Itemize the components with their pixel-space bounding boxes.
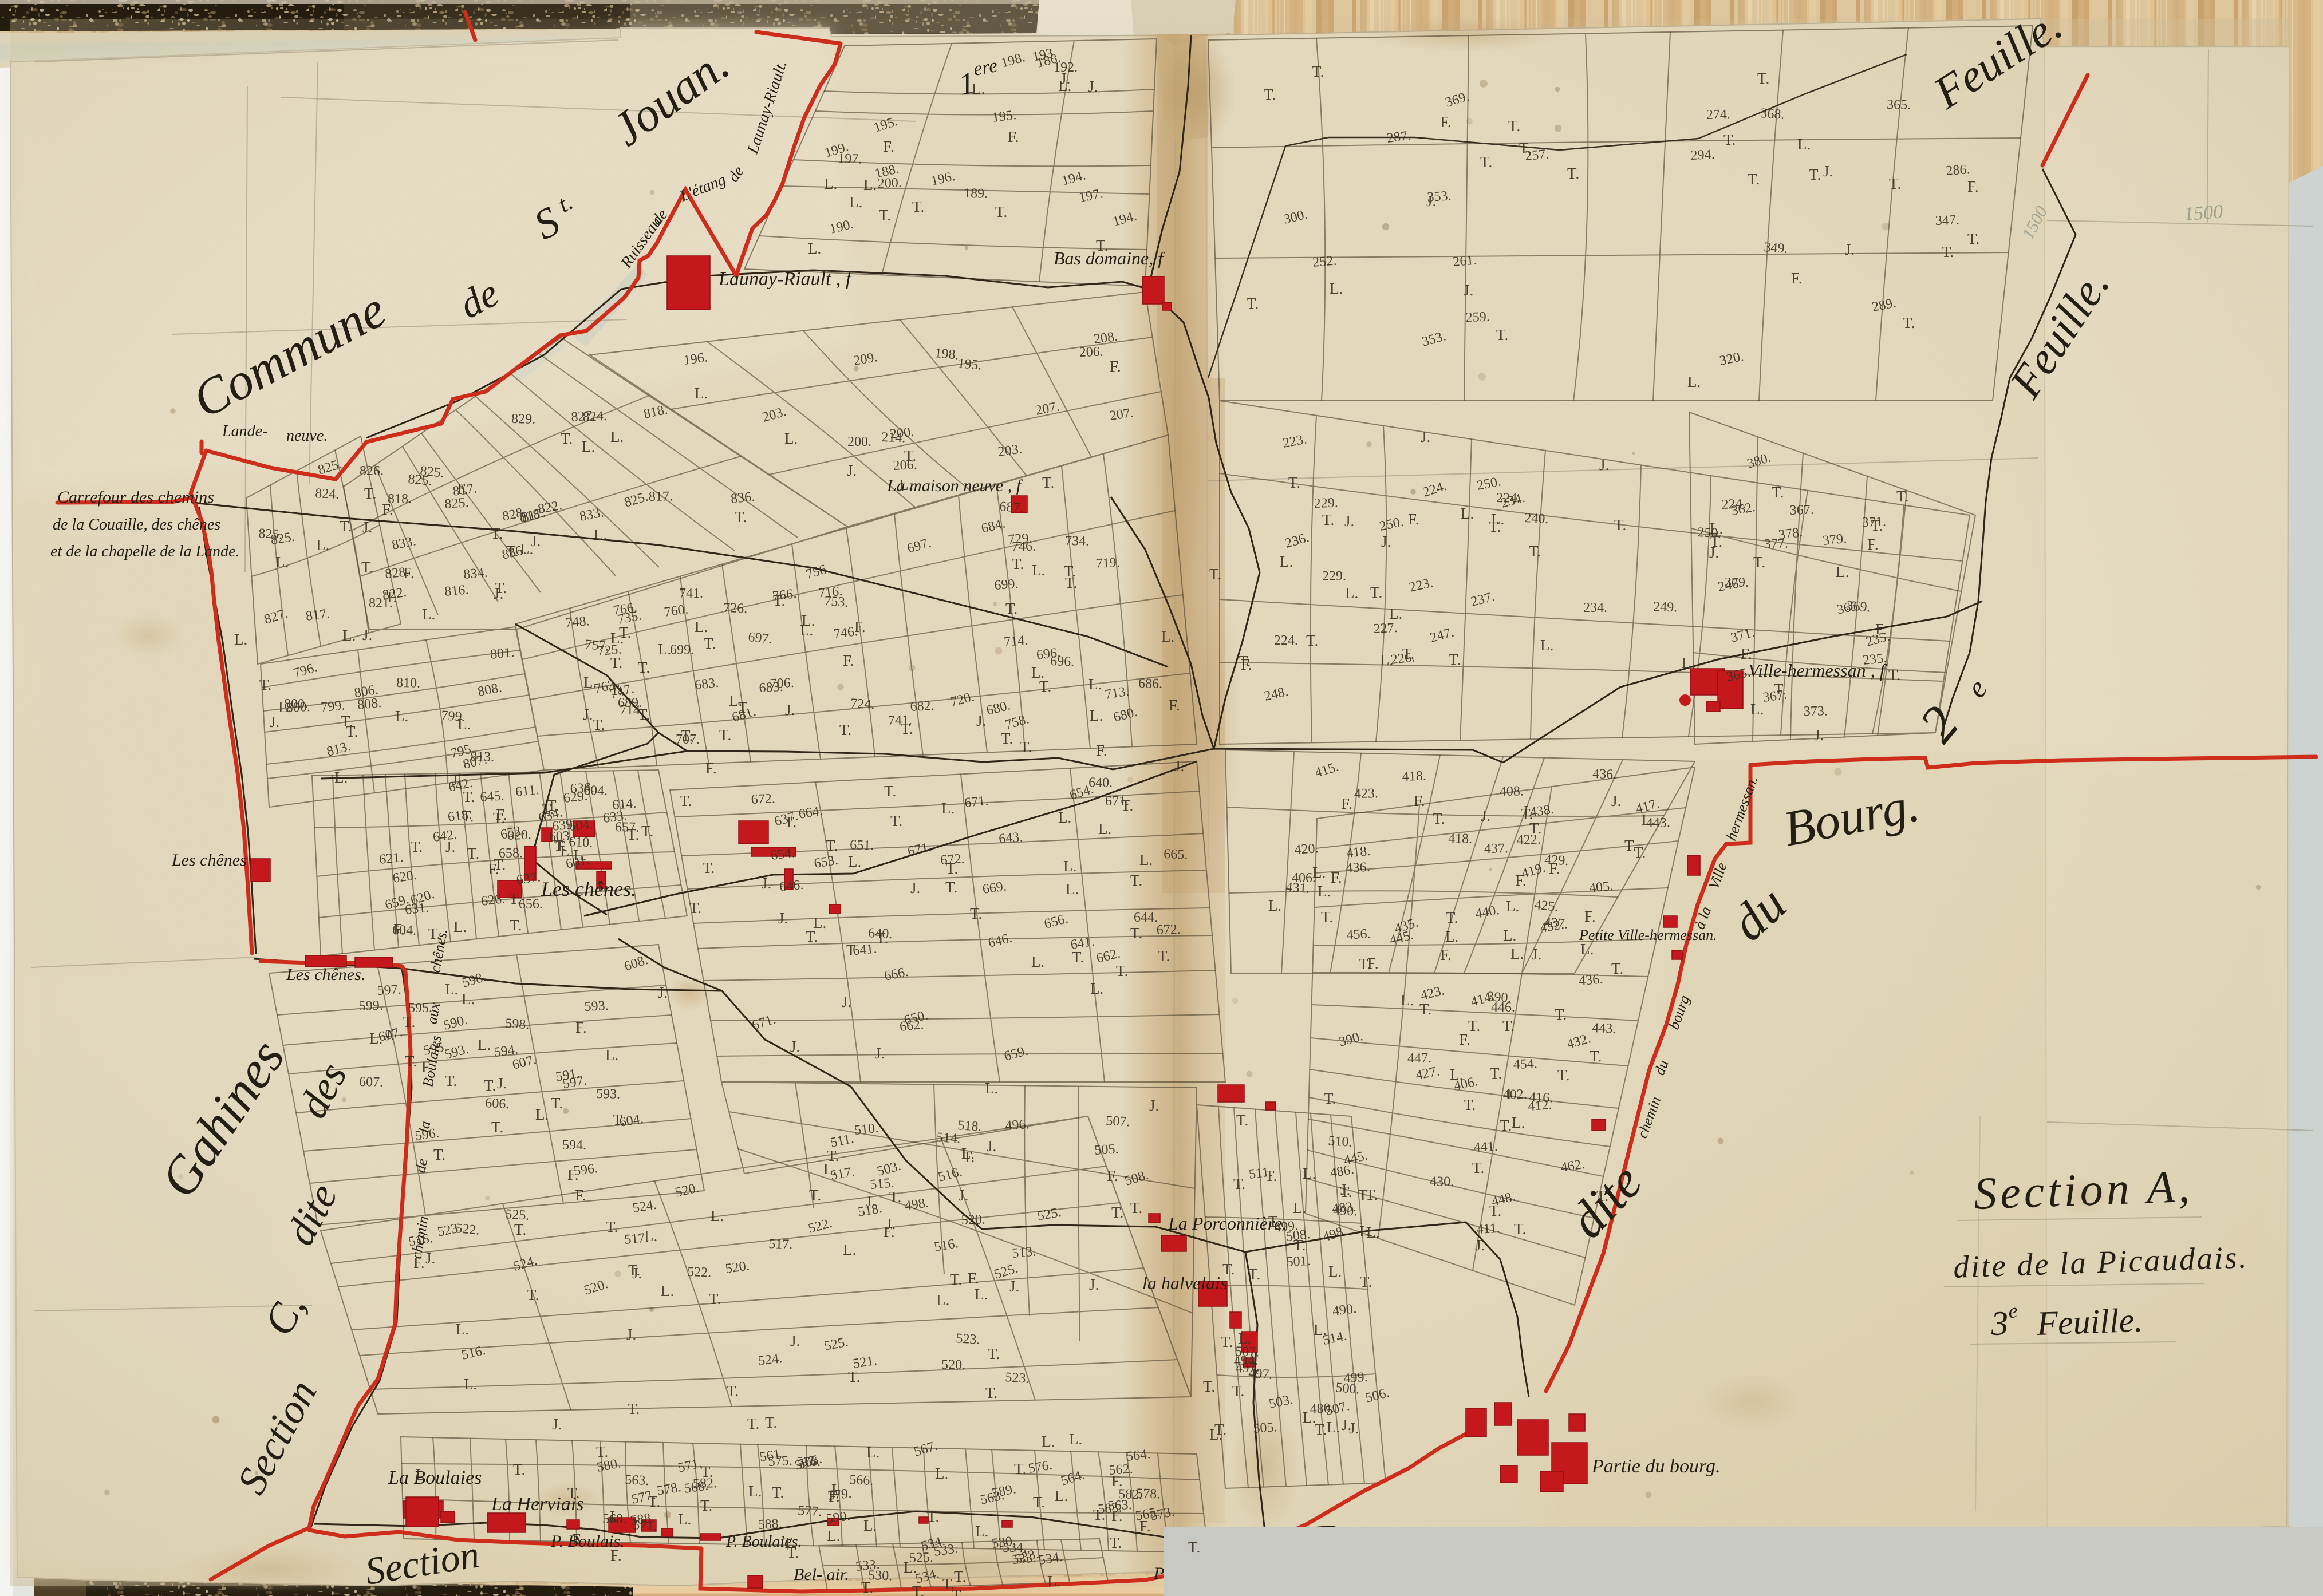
svg-text:L.: L.	[936, 1291, 949, 1309]
svg-text:T.: T.	[1555, 1006, 1567, 1023]
svg-text:T.: T.	[1567, 165, 1579, 182]
svg-text:349.: 349.	[1764, 240, 1789, 256]
svg-text:L.: L.	[1058, 809, 1071, 826]
svg-text:515.: 515.	[869, 1175, 894, 1192]
svg-text:T.: T.	[1110, 1534, 1122, 1551]
svg-text:L.: L.	[1506, 898, 1519, 915]
svg-text:T.: T.	[411, 838, 423, 855]
svg-text:594.: 594.	[562, 1138, 586, 1153]
svg-text:T.: T.	[1033, 1494, 1045, 1511]
svg-text:L.: L.	[711, 1207, 724, 1224]
svg-text:J.: J.	[785, 701, 795, 718]
svg-text:T.: T.	[952, 1586, 964, 1596]
svg-text:T.: T.	[884, 783, 896, 800]
svg-text:F.: F.	[1867, 536, 1879, 553]
svg-text:T.: T.	[912, 198, 924, 215]
svg-text:L.: L.	[1330, 280, 1343, 297]
svg-text:T.: T.	[1209, 566, 1221, 583]
svg-text:T.: T.	[1419, 1001, 1431, 1018]
svg-text:T.: T.	[1321, 908, 1333, 926]
svg-text:645.: 645.	[480, 788, 505, 805]
svg-text:672.: 672.	[1156, 922, 1181, 938]
svg-text:T.: T.	[1508, 117, 1520, 135]
svg-text:234.: 234.	[1583, 601, 1607, 615]
svg-text:F.: F.	[572, 1531, 583, 1548]
svg-text:L.: L.	[1445, 928, 1458, 945]
svg-text:J.: J.	[1381, 533, 1391, 550]
svg-text:836.: 836.	[730, 489, 755, 507]
svg-text:436.: 436.	[1578, 971, 1603, 989]
svg-text:T.: T.	[1236, 1112, 1248, 1129]
svg-text:T.: T.	[445, 1072, 457, 1089]
svg-text:418.: 418.	[1346, 844, 1371, 861]
svg-text:ere: ere	[972, 55, 999, 80]
svg-text:611.: 611.	[515, 783, 540, 800]
svg-text:F.: F.	[1169, 697, 1180, 714]
svg-text:Section A,: Section A,	[1973, 1162, 2194, 1219]
svg-text:J.: J.	[778, 910, 788, 927]
svg-text:T.: T.	[1472, 1159, 1484, 1176]
svg-text:L.: L.	[1836, 563, 1849, 580]
svg-text:F.: F.	[1414, 792, 1425, 809]
svg-text:T.: T.	[1489, 1202, 1501, 1219]
svg-text:T.: T.	[1634, 844, 1646, 861]
svg-text:454.: 454.	[1513, 1057, 1537, 1072]
svg-text:T.: T.	[1293, 1236, 1306, 1254]
svg-text:T.: T.	[641, 823, 653, 840]
svg-text:T.: T.	[1264, 86, 1276, 103]
svg-text:513.: 513.	[1011, 1244, 1036, 1261]
svg-text:224.: 224.	[1274, 633, 1298, 648]
svg-text:L.: L.	[661, 1282, 674, 1299]
svg-text:F.: F.	[1096, 742, 1107, 759]
svg-text:L.: L.	[1359, 1223, 1372, 1240]
svg-text:T.: T.	[1130, 1199, 1142, 1216]
svg-text:T.: T.	[554, 837, 566, 854]
svg-text:644.: 644.	[1134, 910, 1158, 925]
svg-text:593.: 593.	[584, 998, 609, 1014]
svg-text:T.: T.	[340, 517, 352, 535]
svg-text:J.: J.	[362, 626, 372, 643]
svg-text:L.: L.	[1303, 1165, 1316, 1182]
svg-text:T.: T.	[681, 727, 693, 744]
svg-text:818.: 818.	[388, 492, 412, 507]
svg-text:L.: L.	[1345, 584, 1358, 602]
svg-text:Les chênes.: Les chênes.	[541, 878, 636, 900]
svg-text:L.: L.	[1280, 553, 1293, 570]
svg-text:L.: L.	[1327, 1419, 1340, 1436]
svg-text:J.: J.	[762, 875, 771, 892]
svg-text:J.: J.	[1481, 807, 1490, 824]
svg-text:741.: 741.	[888, 713, 912, 728]
svg-text:T.: T.	[1723, 131, 1736, 148]
svg-text:F.: F.	[968, 1270, 979, 1287]
svg-text:501.: 501.	[1286, 1254, 1311, 1270]
svg-text:T.: T.	[1590, 1048, 1602, 1065]
svg-text:T.: T.	[613, 1111, 625, 1128]
svg-text:T.: T.	[1322, 511, 1334, 528]
svg-text:T.: T.	[527, 1286, 539, 1303]
svg-text:L.: L.	[1088, 675, 1102, 693]
svg-text:T.: T.	[1514, 1220, 1526, 1238]
svg-text:L.: L.	[1510, 945, 1524, 962]
svg-text:L.: L.	[748, 1483, 762, 1500]
svg-text:808.: 808.	[357, 696, 382, 713]
svg-text:J.: J.	[976, 712, 986, 729]
svg-text:J.: J.	[1532, 946, 1541, 963]
svg-text:L.: L.	[644, 1227, 657, 1245]
svg-text:T.: T.	[1519, 140, 1531, 157]
svg-text:T.: T.	[1315, 1421, 1327, 1438]
svg-text:T.: T.	[703, 859, 715, 876]
svg-text:L.: L.	[1687, 373, 1701, 390]
svg-text:T.: T.	[1942, 243, 1954, 260]
svg-text:F.: F.	[1584, 908, 1596, 925]
svg-text:Les chênes.: Les chênes.	[286, 965, 365, 984]
svg-text:816.: 816.	[444, 582, 469, 599]
svg-text:697.: 697.	[747, 630, 772, 647]
svg-text:T.: T.	[1464, 1096, 1476, 1113]
svg-text:L.: L.	[975, 1286, 988, 1303]
svg-text:L.: L.	[1312, 864, 1326, 881]
svg-text:L.: L.	[1380, 651, 1393, 669]
svg-text:J.: J.	[1426, 192, 1436, 210]
svg-text:T.: T.	[551, 1095, 563, 1112]
svg-text:T.: T.	[945, 879, 957, 896]
svg-text:J.: J.	[847, 462, 857, 479]
svg-text:T.: T.	[861, 1579, 873, 1596]
svg-text:J.: J.	[987, 1137, 996, 1155]
svg-text:490.: 490.	[1332, 1301, 1358, 1319]
svg-text:T.: T.	[1005, 600, 1017, 617]
svg-text:L.: L.	[1090, 707, 1103, 724]
svg-text:T.: T.	[735, 508, 747, 526]
svg-text:T.: T.	[719, 726, 731, 744]
svg-text:507.: 507.	[1106, 1113, 1130, 1129]
svg-text:L.: L.	[594, 526, 607, 543]
svg-text:F.: F.	[1875, 621, 1887, 638]
svg-text:810.: 810.	[396, 675, 420, 691]
svg-text:L.: L.	[972, 80, 985, 97]
svg-text:L.: L.	[1047, 1573, 1060, 1590]
svg-text:J.: J.	[1088, 78, 1098, 95]
svg-text:T.: T.	[889, 1188, 901, 1206]
svg-text:L.: L.	[1031, 664, 1044, 681]
svg-text:J.: J.	[1089, 1276, 1099, 1293]
svg-text:817.: 817.	[649, 489, 673, 504]
svg-text:J.: J.	[959, 1187, 968, 1204]
svg-text:L.: L.	[849, 193, 862, 211]
svg-text:604.: 604.	[568, 817, 593, 834]
svg-text:824.: 824.	[315, 486, 340, 502]
svg-text:F.: F.	[1008, 128, 1019, 145]
svg-text:699.: 699.	[994, 576, 1019, 593]
svg-text:T.: T.	[1324, 1090, 1336, 1107]
svg-text:826.: 826.	[360, 464, 384, 479]
svg-text:390.: 390.	[1487, 989, 1512, 1006]
svg-text:L.: L.	[605, 1046, 618, 1064]
svg-text:J.: J.	[1009, 1278, 1019, 1295]
svg-text:T.: T.	[1268, 1213, 1280, 1230]
svg-text:T.: T.	[954, 1568, 966, 1585]
svg-text:neuve.: neuve.	[286, 427, 328, 445]
svg-text:249.: 249.	[1653, 599, 1678, 615]
svg-text:636.: 636.	[570, 781, 594, 796]
svg-text:T.: T.	[1188, 1539, 1200, 1556]
svg-text:L.: L.	[422, 606, 435, 623]
svg-text:B: B	[1308, 1512, 1348, 1573]
svg-text:Launay-Riault , f: Launay-Riault , f	[718, 268, 854, 290]
svg-text:T.: T.	[1490, 1065, 1502, 1082]
svg-text:L.: L.	[1314, 1321, 1327, 1338]
svg-text:F.: F.	[403, 564, 415, 582]
svg-text:F.: F.	[1408, 511, 1419, 528]
svg-text:562.: 562.	[1109, 1461, 1134, 1478]
svg-text:T.: T.	[773, 592, 785, 609]
svg-text:T.: T.	[405, 1053, 417, 1070]
svg-text:L.: L.	[395, 708, 408, 725]
svg-text:620.: 620.	[507, 828, 531, 843]
svg-text:L.: L.	[800, 622, 813, 639]
svg-text:T.: T.	[809, 1187, 821, 1204]
svg-text:T.: T.	[784, 813, 796, 831]
svg-text:T.: T.	[1222, 1261, 1235, 1278]
svg-text:F.: F.	[1741, 645, 1752, 662]
svg-text:L.: L.	[1238, 1330, 1251, 1347]
svg-text:F.: F.	[1967, 178, 1979, 195]
svg-text:514.: 514.	[936, 1130, 961, 1147]
svg-text:683.: 683.	[694, 675, 719, 693]
svg-text:L.: L.	[824, 175, 837, 192]
svg-text:J.: J.	[1599, 456, 1609, 473]
svg-text:T.: T.	[494, 856, 506, 873]
svg-text:L.: L.	[1031, 953, 1044, 970]
svg-text:J.: J.	[910, 879, 920, 896]
svg-text:T.: T.	[1967, 230, 1979, 247]
svg-text:741.: 741.	[679, 586, 703, 601]
svg-text:J.: J.	[497, 1074, 507, 1092]
svg-text:T.: T.	[1288, 474, 1300, 491]
svg-text:L.: L.	[1042, 1433, 1055, 1450]
svg-text:T.: T.	[259, 676, 271, 693]
svg-text:T.: T.	[1496, 326, 1508, 343]
svg-text:430.: 430.	[1430, 1174, 1454, 1190]
svg-text:de: de	[412, 1158, 431, 1174]
svg-text:T.: T.	[606, 1218, 618, 1235]
svg-text:T.: T.	[970, 905, 982, 922]
svg-text:801.: 801.	[490, 645, 515, 662]
svg-text:L.: L.	[1066, 880, 1079, 898]
svg-text:la halvelais: la halvelais	[1142, 1273, 1227, 1293]
svg-text:T.: T.	[988, 1345, 1000, 1362]
svg-text:L.: L.	[1682, 654, 1695, 671]
svg-text:T.: T.	[772, 1484, 784, 1501]
svg-text:T.: T.	[1557, 1066, 1569, 1084]
svg-text:T.: T.	[680, 792, 692, 809]
svg-text:724.: 724.	[850, 696, 875, 712]
svg-text:597.: 597.	[377, 982, 401, 998]
svg-text:L.: L.	[1161, 628, 1174, 645]
svg-text:F.: F.	[496, 806, 507, 823]
svg-text:J.: J.	[790, 1038, 800, 1055]
svg-text:L.: L.	[827, 1527, 840, 1544]
svg-text:T.: T.	[1203, 1378, 1215, 1395]
svg-text:La Boulaies: La Boulaies	[388, 1467, 482, 1488]
svg-text:T.: T.	[738, 699, 750, 716]
svg-text:626.: 626.	[480, 891, 506, 909]
svg-text:L.: L.	[985, 1080, 998, 1097]
svg-text:T.: T.	[701, 1463, 713, 1480]
svg-text:T.: T.	[826, 837, 838, 854]
svg-text:T.: T.	[462, 808, 474, 825]
svg-text:J.: J.	[1823, 163, 1833, 180]
svg-text:3: 3	[1990, 1304, 2009, 1342]
svg-text:J.: J.	[552, 1416, 562, 1433]
svg-text:F.: F.	[1440, 113, 1452, 131]
svg-text:522.: 522.	[687, 1265, 712, 1280]
svg-text:Carrefour des chemins: Carrefour des chemins	[57, 488, 214, 507]
svg-text:L.: L.	[1063, 858, 1076, 875]
svg-text:L.: L.	[535, 1106, 549, 1123]
svg-text:T.: T.	[950, 1271, 962, 1288]
svg-text:T.: T.	[1903, 314, 1915, 331]
svg-text:L.: L.	[848, 853, 861, 870]
svg-text:L.: L.	[1506, 1085, 1520, 1103]
svg-text:379.: 379.	[1822, 531, 1847, 548]
svg-text:229.: 229.	[1314, 496, 1338, 511]
svg-text:F.: F.	[883, 138, 894, 155]
svg-text:621.: 621.	[378, 850, 404, 867]
svg-text:734.: 734.	[1065, 534, 1089, 549]
svg-text:J.: J.	[658, 984, 668, 1001]
svg-text:T.: T.	[783, 1534, 795, 1551]
svg-text:699.: 699.	[670, 642, 694, 658]
svg-text:T.: T.	[1232, 1382, 1244, 1400]
svg-text:T.: T.	[403, 1013, 415, 1030]
svg-text:195.: 195.	[992, 108, 1017, 125]
svg-text:T.: T.	[995, 203, 1007, 220]
svg-text:405.: 405.	[1588, 879, 1614, 896]
svg-text:T.: T.	[364, 485, 376, 502]
svg-text:365.: 365.	[1887, 97, 1911, 113]
svg-text:J.: J.	[1523, 803, 1532, 820]
svg-text:T.: T.	[1130, 925, 1142, 942]
svg-text:577.: 577.	[798, 1503, 822, 1519]
svg-text:L.: L.	[941, 800, 955, 817]
svg-text:Prés gaudins: Prés gaudins	[1153, 1564, 1244, 1583]
svg-text:582.: 582.	[1118, 1487, 1143, 1502]
svg-text:517.: 517.	[768, 1236, 793, 1252]
svg-text:T.: T.	[879, 207, 891, 224]
svg-text:T.: T.	[628, 1262, 640, 1279]
svg-text:643.: 643.	[998, 829, 1023, 847]
svg-text:L.: L.	[610, 428, 624, 445]
svg-text:1500: 1500	[2183, 201, 2223, 225]
svg-text:L.: L.	[342, 627, 356, 644]
svg-text:L.: L.	[975, 1523, 988, 1540]
svg-text:T.: T.	[1221, 1333, 1233, 1350]
svg-text:418.: 418.	[1402, 769, 1426, 784]
svg-text:T.: T.	[513, 1461, 525, 1478]
svg-text:L.: L.	[1491, 511, 1504, 528]
svg-text:524.: 524.	[758, 1351, 783, 1369]
svg-text:229.: 229.	[1322, 568, 1346, 584]
svg-text:T.: T.	[467, 845, 479, 862]
svg-text:671.: 671.	[964, 793, 989, 811]
svg-text:J.: J.	[1845, 241, 1855, 258]
svg-text:T.: T.	[1233, 1175, 1245, 1192]
svg-text:Petite Ville-hermessan.: Petite Ville-hermessan.	[1579, 927, 1717, 943]
svg-text:L.: L.	[1642, 811, 1655, 828]
svg-text:T.: T.	[1065, 574, 1077, 591]
svg-text:411.: 411.	[1476, 1221, 1500, 1237]
svg-text:686.: 686.	[1138, 676, 1162, 692]
svg-text:T.: T.	[428, 925, 440, 942]
svg-text:T.: T.	[1611, 960, 1623, 977]
svg-text:696.: 696.	[1036, 645, 1062, 663]
svg-text:J.: J.	[583, 706, 593, 723]
svg-text:654.: 654.	[770, 846, 796, 863]
svg-text:L.: L.	[1069, 1431, 1082, 1448]
svg-text:L.: L.	[1293, 1199, 1306, 1216]
svg-text:240.: 240.	[1524, 511, 1549, 527]
svg-text:412.: 412.	[1528, 1097, 1553, 1114]
svg-text:T.: T.	[1596, 1187, 1608, 1204]
svg-text:T.: T.	[890, 812, 902, 829]
svg-text:T.: T.	[495, 579, 507, 596]
svg-text:F.: F.	[1110, 358, 1121, 375]
svg-text:L.: L.	[610, 1508, 623, 1525]
svg-text:575.: 575.	[768, 1453, 792, 1469]
svg-text:J.: J.	[790, 1332, 800, 1349]
svg-text:T.: T.	[1116, 962, 1128, 979]
svg-text:825.: 825.	[258, 526, 283, 542]
svg-text:714.: 714.	[1003, 633, 1028, 650]
svg-text:T.: T.	[510, 916, 522, 934]
svg-text:725.: 725.	[597, 642, 622, 659]
svg-text:F.: F.	[1111, 1507, 1123, 1524]
svg-text:T.: T.	[1247, 295, 1259, 312]
svg-text:378.: 378.	[1778, 525, 1804, 543]
svg-text:719.: 719.	[1095, 555, 1120, 571]
svg-text:510.: 510.	[1328, 1133, 1353, 1150]
svg-text:429.: 429.	[1544, 852, 1569, 868]
svg-text:T.: T.	[341, 713, 353, 730]
svg-text:L.: L.	[416, 1466, 429, 1483]
svg-text:646.: 646.	[779, 878, 804, 895]
svg-text:T.: T.	[1480, 153, 1492, 171]
svg-text:F.: F.	[413, 1254, 425, 1271]
svg-text:F.: F.	[610, 1547, 622, 1564]
svg-text:520.: 520.	[961, 1212, 985, 1228]
svg-text:L.: L.	[456, 1321, 469, 1338]
svg-text:F.: F.	[829, 1488, 840, 1505]
svg-text:L.: L.	[1512, 1114, 1525, 1131]
svg-text:T.: T.	[927, 1508, 939, 1525]
svg-text:T.: T.	[727, 1382, 739, 1400]
svg-text:195.: 195.	[957, 356, 982, 373]
svg-text:443.: 443.	[1592, 1021, 1616, 1036]
svg-text:483.: 483.	[1331, 1199, 1356, 1216]
svg-text:499.: 499.	[1343, 1370, 1368, 1386]
svg-text:J.: J.	[445, 838, 455, 855]
svg-text:753.: 753.	[824, 594, 849, 610]
svg-text:J.: J.	[1464, 282, 1473, 299]
svg-text:595.: 595.	[408, 1001, 432, 1016]
svg-text:L.: L.	[1389, 605, 1402, 622]
svg-text:L.: L.	[695, 385, 708, 402]
svg-text:T.: T.	[709, 1290, 721, 1307]
